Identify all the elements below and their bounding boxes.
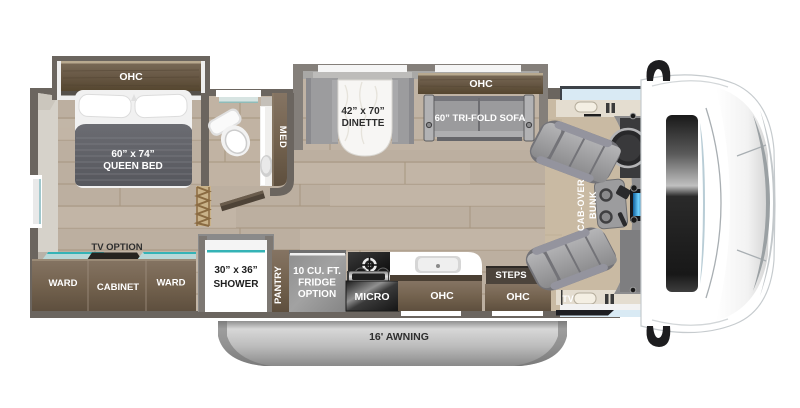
svg-text:60” x 74”: 60” x 74” — [111, 149, 154, 160]
svg-text:BUNK: BUNK — [588, 191, 598, 219]
svg-text:MICRO: MICRO — [355, 291, 390, 303]
svg-text:MED: MED — [277, 126, 288, 149]
svg-text:30” x 36”: 30” x 36” — [214, 265, 257, 276]
svg-text:TV OPTION: TV OPTION — [91, 242, 142, 253]
svg-text:STEPS: STEPS — [495, 270, 526, 281]
svg-text:CABINET: CABINET — [97, 282, 139, 293]
svg-text:SHOWER: SHOWER — [214, 279, 260, 290]
svg-text:10 CU. FT.: 10 CU. FT. — [293, 266, 341, 277]
svg-text:16' AWNING: 16' AWNING — [369, 331, 429, 343]
svg-text:60” TRI-FOLD SOFA: 60” TRI-FOLD SOFA — [435, 113, 526, 124]
svg-text:OHC: OHC — [119, 71, 143, 83]
svg-text:PANTRY: PANTRY — [273, 265, 284, 304]
svg-text:WARD: WARD — [48, 278, 77, 289]
svg-text:OHC: OHC — [430, 290, 454, 302]
svg-text:OHC: OHC — [469, 78, 493, 90]
svg-text:TV: TV — [562, 294, 574, 304]
svg-text:OHC: OHC — [506, 291, 530, 303]
svg-text:OPTION: OPTION — [298, 289, 336, 300]
svg-text:42” x 70”: 42” x 70” — [341, 106, 384, 117]
svg-text:FRIDGE: FRIDGE — [298, 278, 336, 289]
svg-text:WARD: WARD — [156, 278, 185, 289]
svg-text:CAB-OVER: CAB-OVER — [576, 179, 586, 231]
svg-text:DINETTE: DINETTE — [342, 118, 385, 129]
svg-text:QUEEN BED: QUEEN BED — [103, 161, 162, 172]
